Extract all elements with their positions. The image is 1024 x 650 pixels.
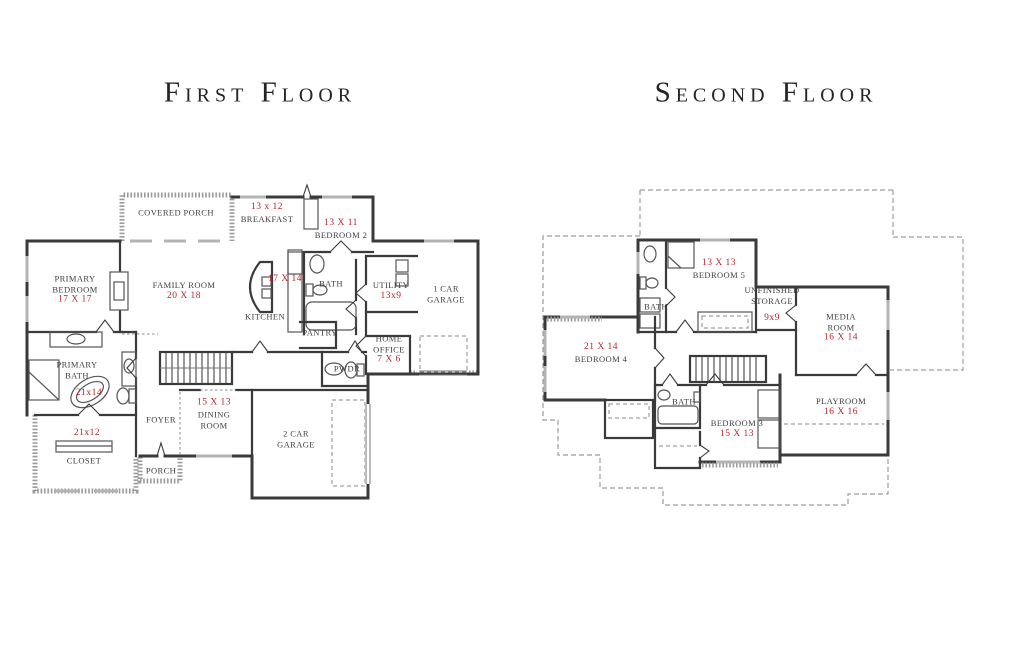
room-label-bedroom-3: BEDROOM 3 15 X 13 [707,418,767,441]
room-name: PRIMARY BATH [48,359,106,380]
room-label-foyer: FOYER [139,415,183,426]
room-label-closet: CLOSET [59,456,109,467]
room-dim: 17 X 14 [268,274,302,286]
first-floor-title: First Floor [164,77,356,110]
room-dim: 13 X 11 [324,218,358,230]
room-label-bath-lower: BATH [664,397,704,408]
room-name: UTILITY [373,280,409,291]
room-name: BEDROOM 3 [711,418,763,429]
room-name: COVERED PORCH [138,208,214,219]
room-name: BATH [644,302,668,313]
room-name: BEDROOM 2 [315,230,367,241]
room-name: PRIMARY BEDROOM [43,273,107,294]
room-dim: 15 X 13 [197,397,231,409]
room-name: DINING ROOM [188,409,240,430]
room-dim-closet: 21x12 [64,428,110,440]
room-label-pantry: PANTRY [295,328,345,339]
room-label-bedroom-4: 21 X 14 BEDROOM 4 [571,342,631,365]
room-name: PANTRY [302,328,337,339]
room-name: KITCHEN [245,312,285,323]
room-dim: 21x12 [74,428,100,440]
room-label-2-car-garage: 2 CAR GARAGE [270,428,322,449]
room-dim: 16 X 16 [824,406,858,418]
room-dim: 20 X 18 [167,290,201,302]
room-dim: 13x9 [381,290,402,302]
room-dim: 15 X 13 [720,428,754,440]
room-name: CLOSET [67,456,102,467]
room-name: UNFINISHED STORAGE [734,285,810,306]
room-label-breakfast: 13 x 12 BREAKFAST [222,202,312,225]
floorplan-sheet: First Floor Second Floor COVERED PORCH 1… [0,0,1024,650]
room-label-primary-bedroom: PRIMARY BEDROOM 17 X 17 [43,273,107,306]
room-name: HOME OFFICE [366,333,412,354]
room-name: 1 CAR GARAGE [421,283,471,304]
room-dim: 13 x 12 [251,202,283,214]
room-label-bedroom-5: 13 X 13 BEDROOM 5 [689,258,749,281]
room-name: BREAKFAST [241,214,294,225]
room-label-porch: PORCH [139,466,183,477]
room-label-bath: BATH [311,279,351,290]
room-label-media-room: MEDIA ROOM 16 X 14 [818,311,864,344]
room-label-powder: PWDR [327,364,367,375]
room-dim: 21 X 14 [584,342,618,354]
second-floor-title: Second Floor [655,77,878,110]
room-label-family-room: FAMILY ROOM 20 X 18 [129,280,239,303]
room-label-dining-room: 15 X 13 DINING ROOM [188,397,240,430]
room-label-playroom: PLAYROOM 16 X 16 [796,396,886,419]
room-name: PORCH [146,466,176,477]
room-name: PLAYROOM [816,396,866,407]
room-name: BATH [672,397,696,408]
room-label-1-car-garage: 1 CAR GARAGE [421,283,471,304]
room-label-primary-bath: PRIMARY BATH [48,359,106,380]
room-label-bedroom-2: 13 X 11 BEDROOM 2 [312,218,370,241]
room-name: BEDROOM 4 [575,354,627,365]
room-dim: 17 X 17 [58,295,92,307]
room-dim: 7 X 6 [377,355,401,367]
room-label-kitchen: KITCHEN [230,312,300,323]
room-name: 2 CAR GARAGE [270,428,322,449]
room-name: FAMILY ROOM [153,280,216,291]
room-label-covered-porch: COVERED PORCH [116,208,236,219]
room-dim-kitchen: 17 X 14 [255,274,315,286]
room-name: BATH [319,279,343,290]
room-label-unfinished-storage: UNFINISHED STORAGE 9x9 [734,285,810,325]
room-label-bath-upper: BATH [636,302,676,313]
room-dim: 13 X 13 [702,258,736,270]
room-label-utility: UTILITY 13x9 [363,280,419,303]
room-name: PWDR [334,364,360,375]
room-name: FOYER [146,415,176,426]
room-name: BEDROOM 5 [693,270,745,281]
room-dim: 21x14 [76,388,102,400]
room-dim: 16 X 14 [824,333,858,345]
room-name: MEDIA ROOM [818,311,864,332]
room-label-home-office: HOME OFFICE 7 X 6 [366,333,412,366]
room-dim: 9x9 [764,313,780,325]
room-dim-primary-bath: 21x14 [66,388,112,400]
